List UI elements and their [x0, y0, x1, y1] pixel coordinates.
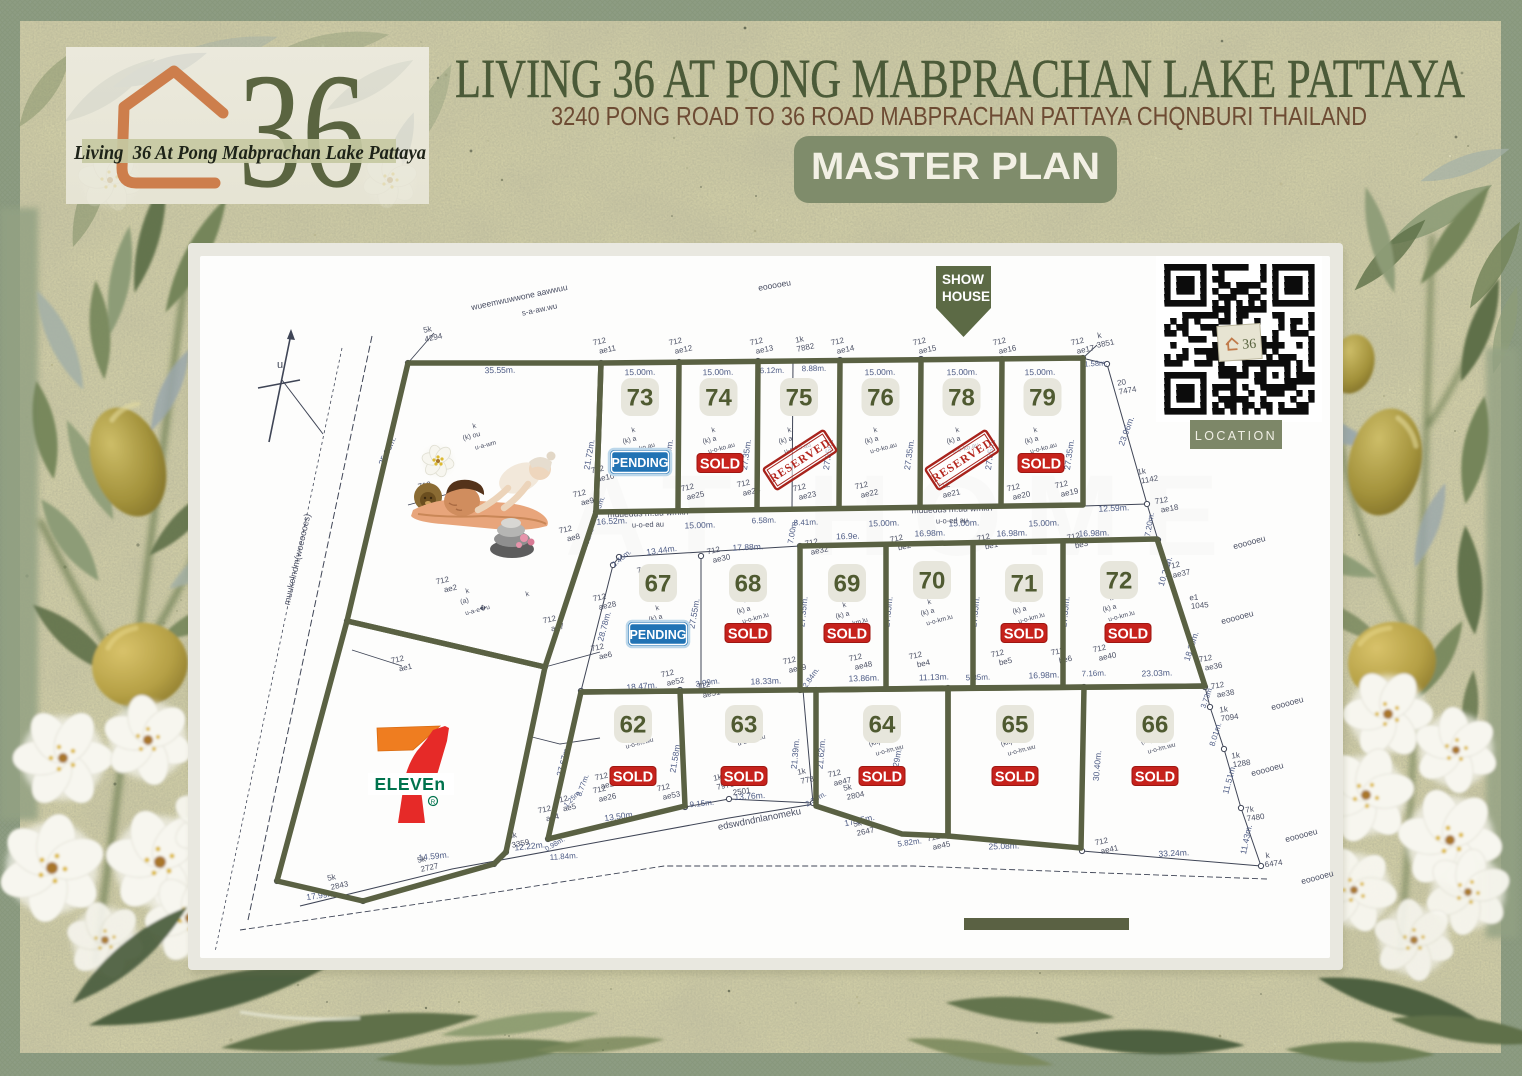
svg-text:16.98m.: 16.98m.	[1078, 527, 1109, 538]
svg-text:LOCATION: LOCATION	[1195, 429, 1277, 443]
svg-text:73: 73	[627, 385, 654, 412]
svg-text:67: 67	[645, 571, 672, 598]
svg-text:HOUSE: HOUSE	[942, 289, 990, 304]
svg-text:SOLD: SOLD	[862, 770, 902, 786]
svg-text:R: R	[431, 799, 436, 806]
svg-text:16.98m.: 16.98m.	[914, 527, 945, 538]
svg-text:SOLD: SOLD	[613, 770, 653, 786]
svg-text:71: 71	[1011, 571, 1038, 598]
svg-text:MASTER PLAN: MASTER PLAN	[811, 146, 1100, 188]
svg-text:33.24m.: 33.24m.	[1158, 847, 1189, 859]
svg-text:70: 70	[919, 568, 946, 595]
svg-text:16.98m.: 16.98m.	[1028, 669, 1059, 680]
svg-text:3240 PONG ROAD TO 36 ROAD MABP: 3240 PONG ROAD TO 36 ROAD MABPRACHAN PAT…	[551, 101, 1367, 131]
svg-text:15.00m.: 15.00m.	[865, 367, 896, 378]
svg-text:17.88m.: 17.88m.	[732, 541, 763, 553]
svg-text:7.16m.: 7.16m.	[1082, 669, 1107, 679]
svg-text:1.58m.: 1.58m.	[1084, 358, 1107, 368]
svg-text:1045: 1045	[1191, 600, 1210, 611]
svg-text:15.00m.: 15.00m.	[1028, 517, 1059, 528]
svg-text:SOLD: SOLD	[1135, 770, 1175, 786]
svg-text:74: 74	[705, 385, 732, 412]
svg-text:18.33m.: 18.33m.	[750, 675, 781, 686]
svg-text:5.85m.: 5.85m.	[966, 673, 991, 683]
svg-text:LIVING 36 AT PONG MABPRACHAN L: LIVING 36 AT PONG MABPRACHAN LAKE PATTAY…	[455, 48, 1465, 109]
svg-text:15.00m.: 15.00m.	[1025, 367, 1056, 378]
svg-text:13.86m.: 13.86m.	[848, 672, 879, 683]
svg-text:15.00m.: 15.00m.	[868, 517, 899, 528]
svg-text:64: 64	[869, 712, 896, 739]
svg-text:79: 79	[1029, 385, 1056, 412]
svg-text:35.55m.: 35.55m.	[485, 365, 516, 376]
svg-text:SOLD: SOLD	[995, 770, 1035, 786]
svg-text:65: 65	[1002, 712, 1029, 739]
svg-text:8.88m.: 8.88m.	[802, 364, 827, 373]
svg-text:15.00m.: 15.00m.	[703, 367, 734, 378]
svg-text:SOLD: SOLD	[724, 770, 764, 786]
svg-text:u-o-ed au: u-o-ed au	[936, 515, 968, 525]
svg-text:66: 66	[1142, 712, 1169, 739]
svg-text:6.58m.: 6.58m.	[752, 516, 777, 526]
svg-text:SOLD: SOLD	[728, 627, 768, 643]
svg-text:75: 75	[786, 385, 813, 412]
svg-text:62: 62	[620, 712, 647, 739]
svg-text:72: 72	[1106, 568, 1133, 595]
svg-text:16.9e.: 16.9e.	[836, 531, 860, 542]
svg-text:SOLD: SOLD	[1108, 627, 1148, 643]
svg-text:63: 63	[731, 712, 758, 739]
svg-text:u-o-ed au: u-o-ed au	[632, 519, 664, 529]
svg-text:68: 68	[735, 571, 762, 598]
svg-text:11.13m.: 11.13m.	[919, 671, 949, 682]
svg-text:15.00m.: 15.00m.	[684, 519, 715, 530]
svg-text:36: 36	[238, 39, 366, 222]
svg-text:SOLD: SOLD	[1004, 627, 1044, 643]
svg-text:12.59m.: 12.59m.	[1098, 502, 1129, 514]
svg-text:SOLD: SOLD	[1021, 457, 1061, 473]
svg-text:6.12m.: 6.12m.	[760, 366, 785, 375]
svg-text:SOLD: SOLD	[700, 457, 740, 473]
svg-text:SOLD: SOLD	[827, 627, 867, 643]
svg-text:15.00m.: 15.00m.	[625, 367, 656, 378]
svg-text:69: 69	[834, 571, 861, 598]
svg-text:Living 36 At Pong Mabprachan: Living 36 At Pong Mabprachan Lake Pattay…	[73, 142, 426, 164]
svg-text:76: 76	[867, 385, 894, 412]
svg-text:u: u	[277, 359, 283, 371]
svg-text:SHOW: SHOW	[942, 272, 984, 287]
svg-text:15.00m.: 15.00m.	[947, 367, 978, 378]
svg-text:PENDING: PENDING	[612, 456, 669, 470]
svg-text:16.98m.: 16.98m.	[996, 527, 1027, 538]
svg-text:36: 36	[1242, 337, 1257, 353]
svg-text:ELEVEn: ELEVEn	[374, 774, 445, 794]
svg-text:78: 78	[948, 385, 975, 412]
svg-text:PENDING: PENDING	[630, 628, 687, 642]
svg-text:23.03m.: 23.03m.	[1141, 667, 1172, 678]
